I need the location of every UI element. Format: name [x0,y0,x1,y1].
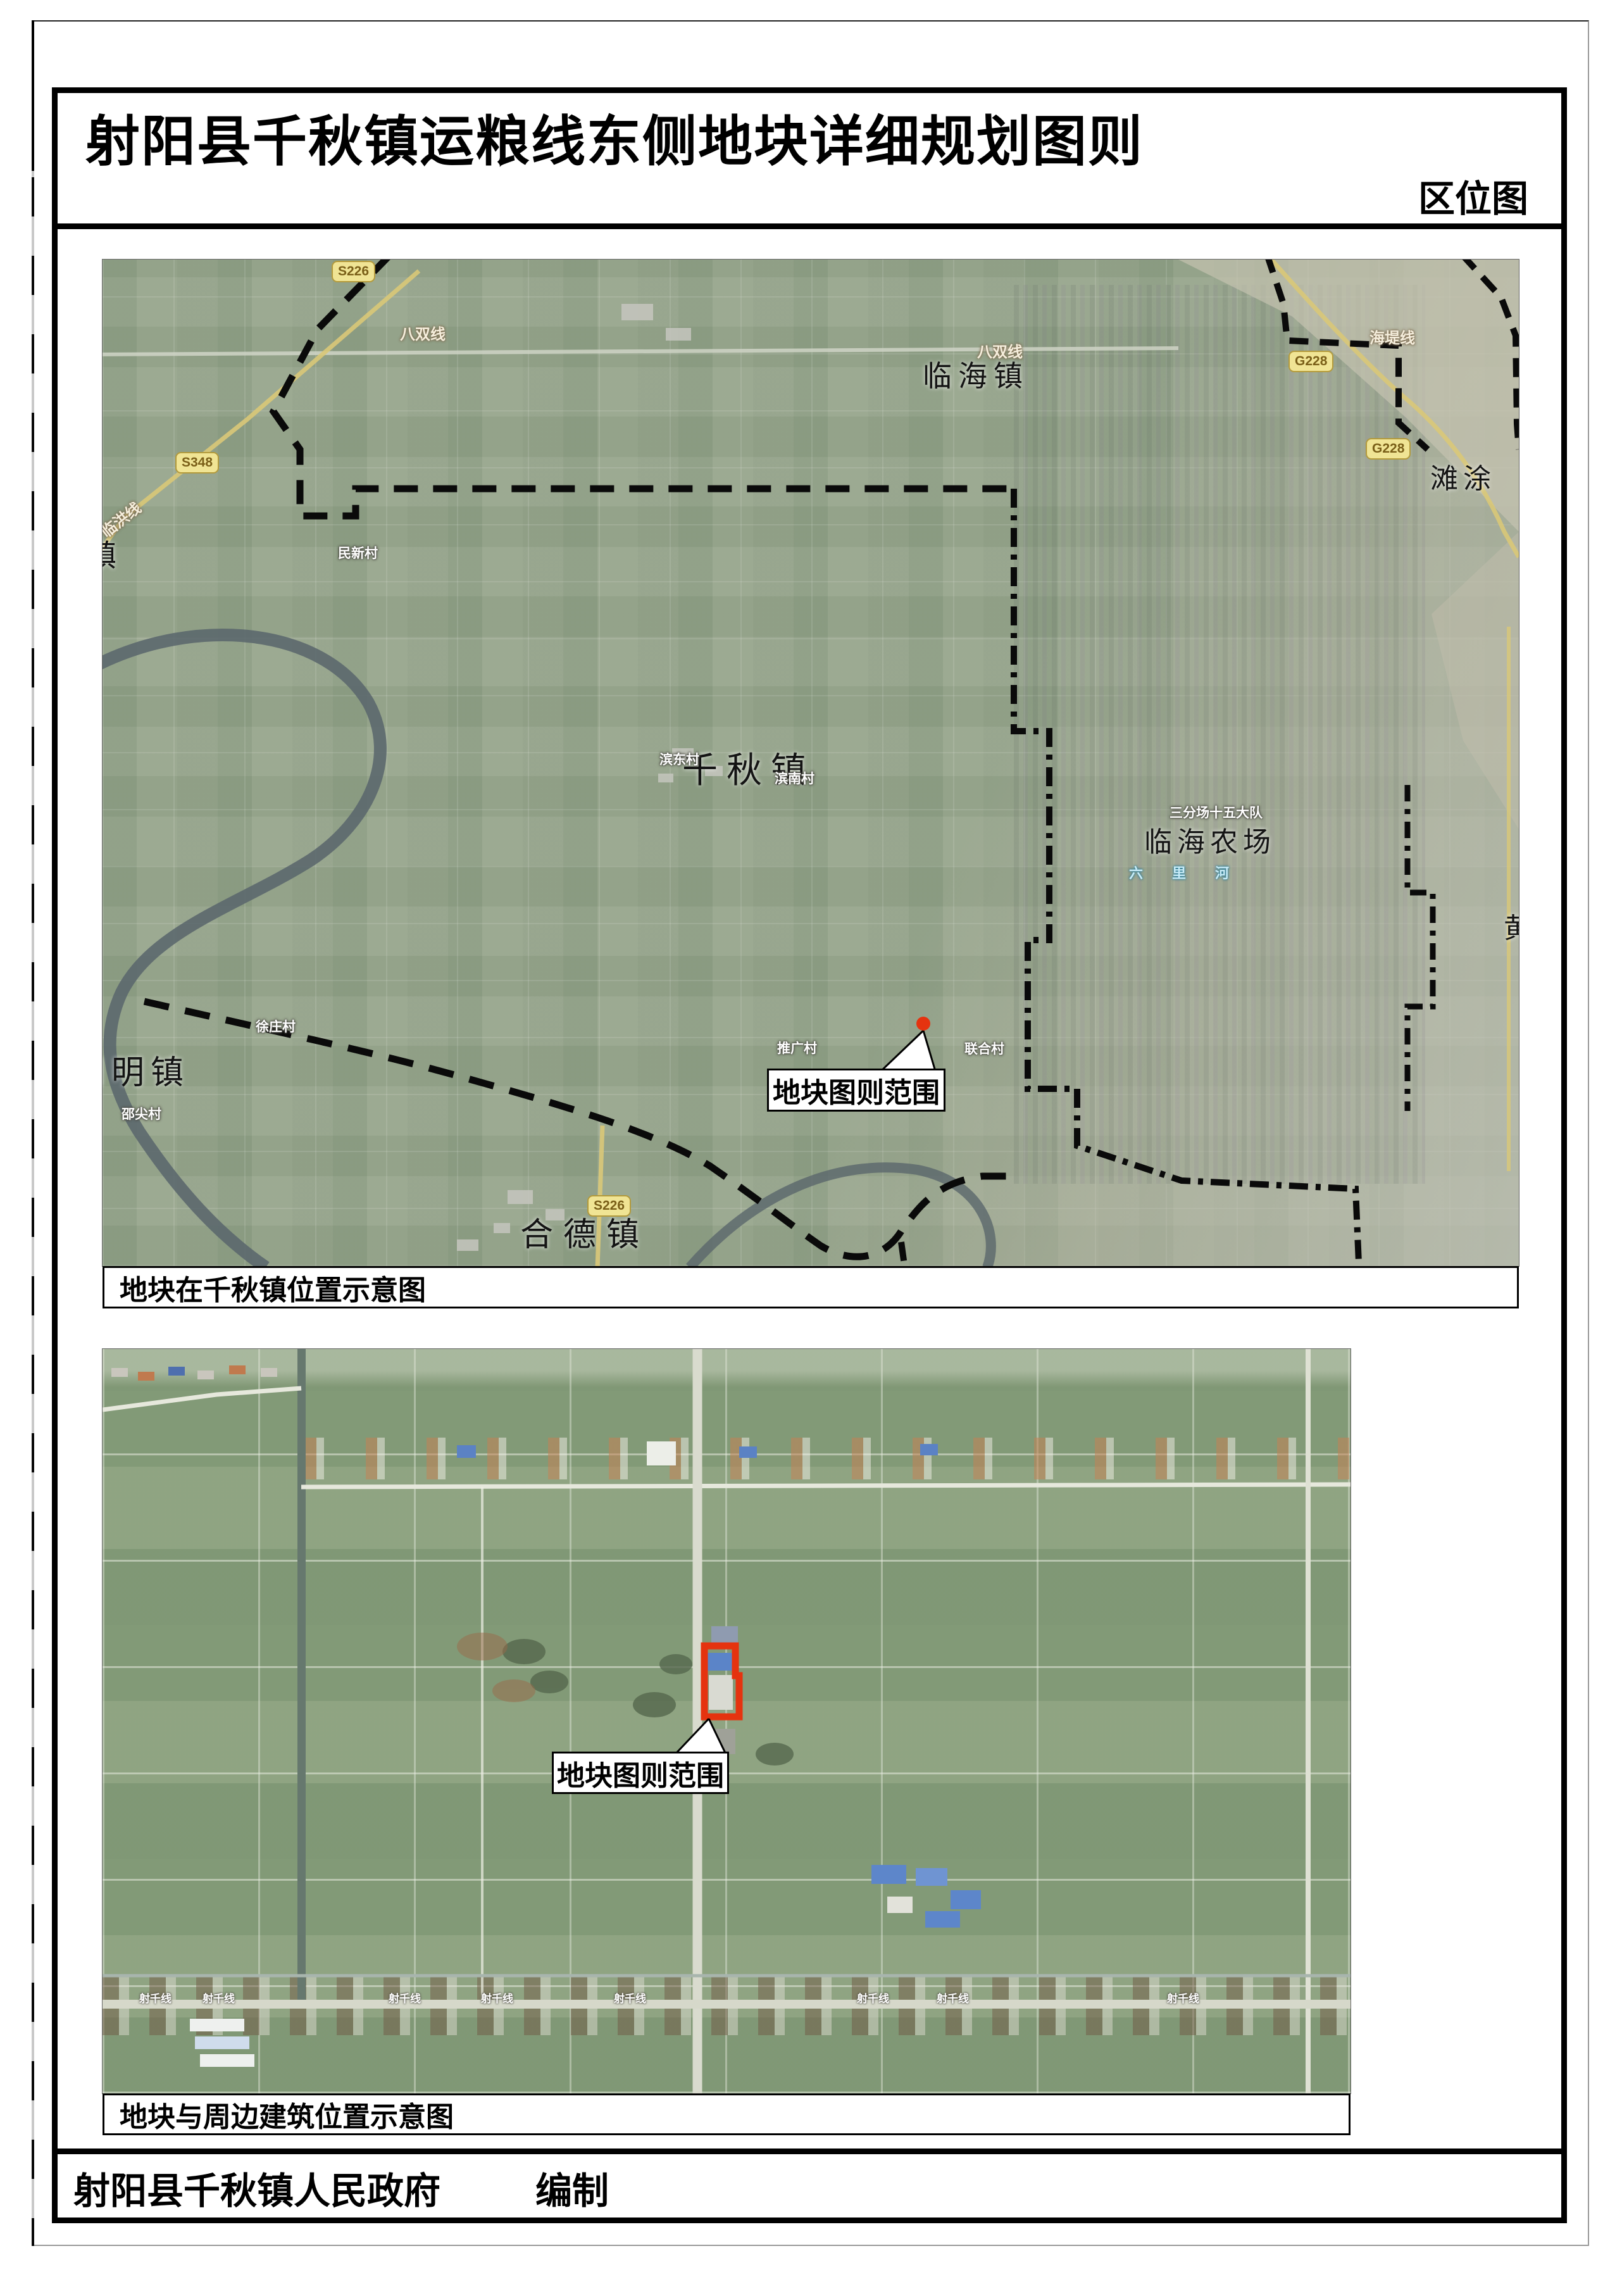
map-label-minxin-village: 民新村 [338,543,378,562]
footer-organization: 射阳县千秋镇人民政府 [73,2161,440,2214]
map-label-huang-partial: 黄 [1504,905,1519,946]
map-label-sheqian-road: 射千线 [857,1990,889,2005]
plan-sheet: 射阳县千秋镇运粮线东侧地块详细规划图则 区位图 [0,0,1622,2296]
map-label-sheqian-road: 射千线 [481,1990,513,2005]
route-badge-s348: S348 [175,452,219,474]
footer-compiled-label: 编制 [535,2161,609,2214]
footer: 射阳县千秋镇人民政府 编制 [73,2159,609,2217]
surroundings-map: 射千线 射千线 射千线 射千线 射千线 射千线 射千线 射千线 地块图则范围 [103,1349,1351,2093]
map-label-shaojian-village: 邵尖村 [122,1104,161,1123]
map-label-lianhe-village: 联合村 [964,1039,1004,1058]
footer-divider [58,2149,1561,2154]
location-map-caption: 地块在千秋镇位置示意图 [103,1266,1519,1308]
map-label-liuli-river: 六里河 [1129,862,1258,882]
route-badge-s226-north: S226 [332,261,375,282]
plot-callout-map2: 地块图则范围 [552,1752,729,1794]
surroundings-map-overlay [103,1349,1351,2093]
map-label-binnan-village: 滨南村 [775,768,814,787]
map-label-yangming-town: 阳明镇 [103,1046,190,1093]
map-label-sheqian-road: 射千线 [389,1990,421,2005]
map-label-tuiguang-village: 推广村 [777,1038,817,1057]
map-label-sheqian-road: 射千线 [614,1990,646,2005]
map-label-bashuang-road-w: 八双线 [400,322,446,344]
route-badge-g228-upper: G228 [1288,351,1333,372]
map-label-sheqian-road: 射千线 [937,1990,969,2005]
map-label-sheqian-road: 射千线 [1167,1990,1199,2005]
map-label-xuzhuang-village: 徐庄村 [256,1017,296,1036]
map-label-haidi-road: 海堤线 [1369,325,1415,348]
corner-label: 区位图 [1418,169,1528,222]
map-label-hede-town: 合德镇 [520,1208,649,1255]
route-badge-s226-south: S226 [587,1195,631,1217]
map-label-tidal-flats: 滩涂 [1430,456,1496,496]
map-label-bashuang-road-e: 八双线 [977,339,1023,361]
left-fold-marks [32,20,34,2246]
map-label-linhai-farm: 临海农场 [1144,819,1276,860]
plot-callout-map1: 地块图则范围 [767,1069,945,1112]
map-label-sheqian-road: 射千线 [139,1990,172,2005]
sheet-header: 射阳县千秋镇运粮线东侧地块详细规划图则 区位图 [58,93,1561,229]
route-badge-g228-lower: G228 [1366,438,1411,460]
map-label-bindong-village: 滨东村 [659,750,699,768]
surroundings-map-caption: 地块与周边建筑位置示意图 [103,2093,1351,2135]
plot-marker-dot [916,1017,930,1031]
location-map: 临海镇 千秋镇 临海农场 合德镇 阳明镇 滩涂 黄 镇 民新村 徐庄村 邵尖村 … [103,260,1519,1266]
map-label-brigade-15: 三分场十五大队 [1170,803,1263,822]
page-title: 射阳县千秋镇运粮线东侧地块详细规划图则 [85,97,1144,176]
map-label-sheqian-road: 射千线 [203,1990,235,2005]
